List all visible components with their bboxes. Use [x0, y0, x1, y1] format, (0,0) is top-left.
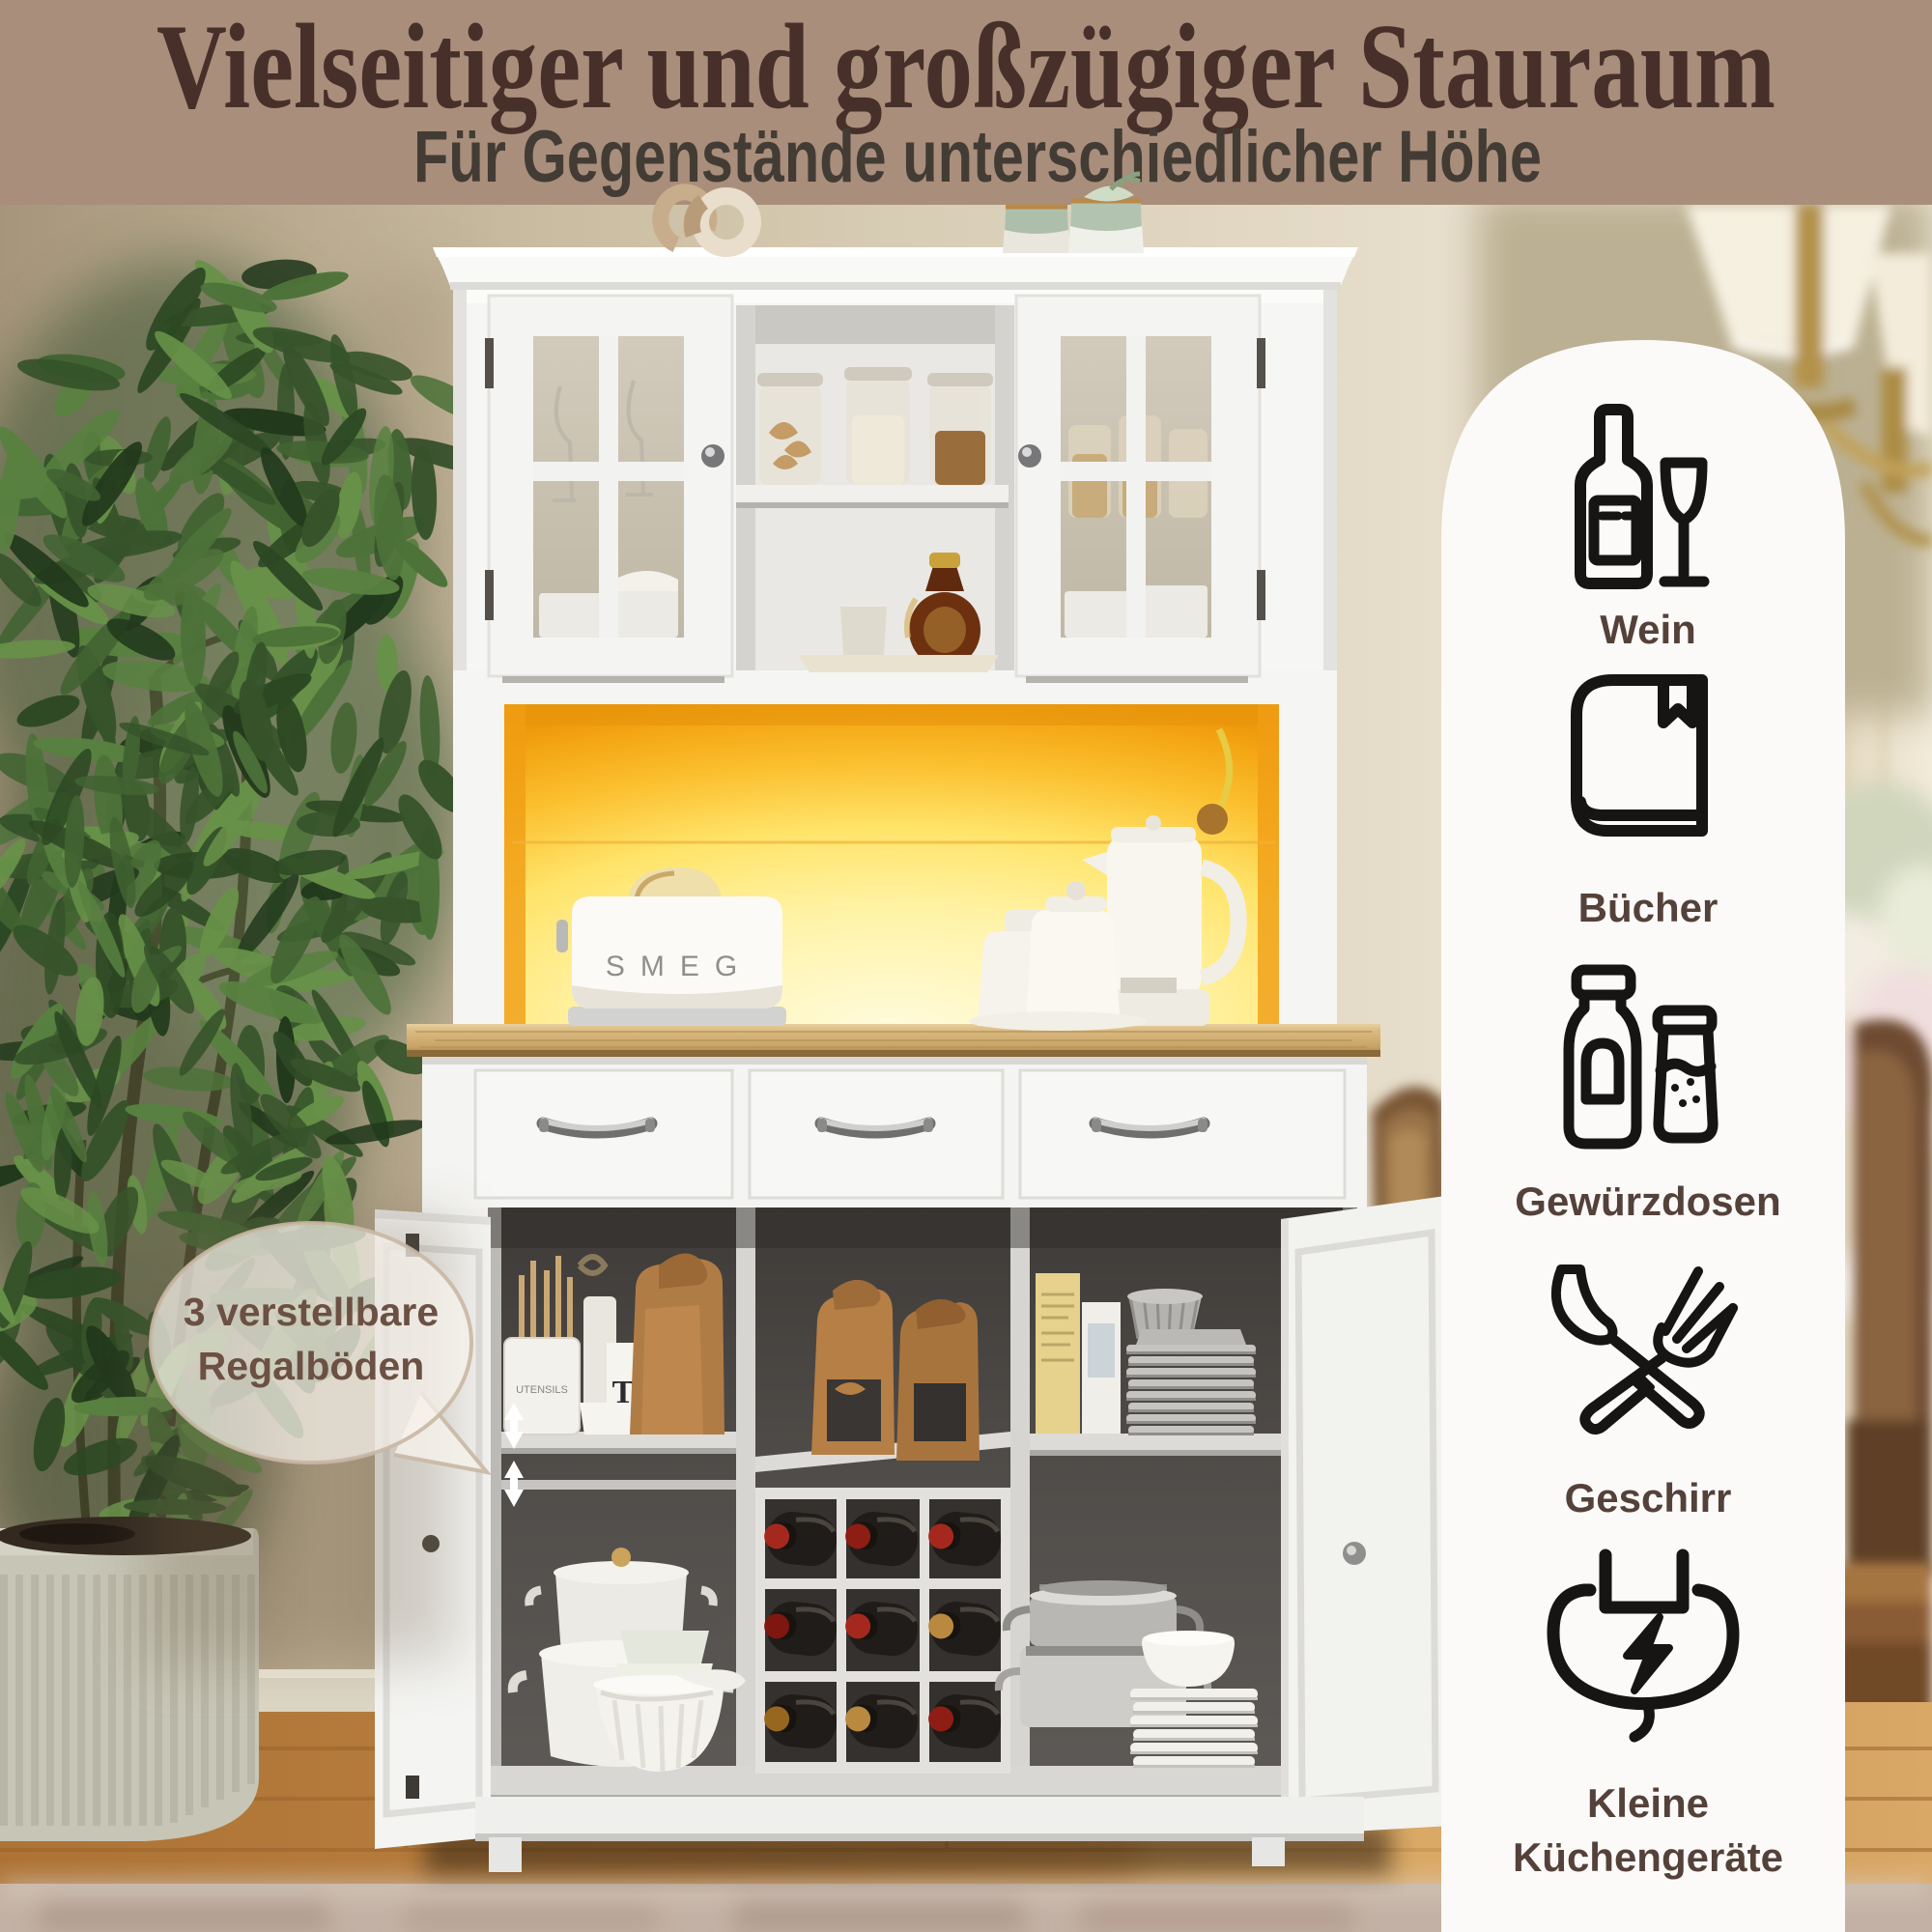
- svg-text:Kleine: Kleine: [1587, 1780, 1709, 1826]
- svg-text:Gewürzdosen: Gewürzdosen: [1515, 1179, 1780, 1224]
- svg-text:Küchengeräte: Küchengeräte: [1513, 1834, 1783, 1880]
- svg-text:Vielseitiger und großzügiger S: Vielseitiger und großzügiger Stauraum: [156, 0, 1776, 134]
- svg-text:Geschirr: Geschirr: [1565, 1475, 1732, 1520]
- svg-text:Bücher: Bücher: [1578, 885, 1719, 930]
- svg-text:SMEG: SMEG: [606, 951, 753, 982]
- svg-text:Wein: Wein: [1600, 607, 1696, 652]
- svg-text:3 verstellbare: 3 verstellbare: [184, 1290, 439, 1334]
- svg-text:Regalböden: Regalböden: [198, 1344, 425, 1388]
- svg-text:Für Gegenstände unterschiedlic: Für Gegenstände unterschiedlicher Höhe: [413, 116, 1542, 198]
- svg-text:UTENSILS: UTENSILS: [516, 1384, 568, 1396]
